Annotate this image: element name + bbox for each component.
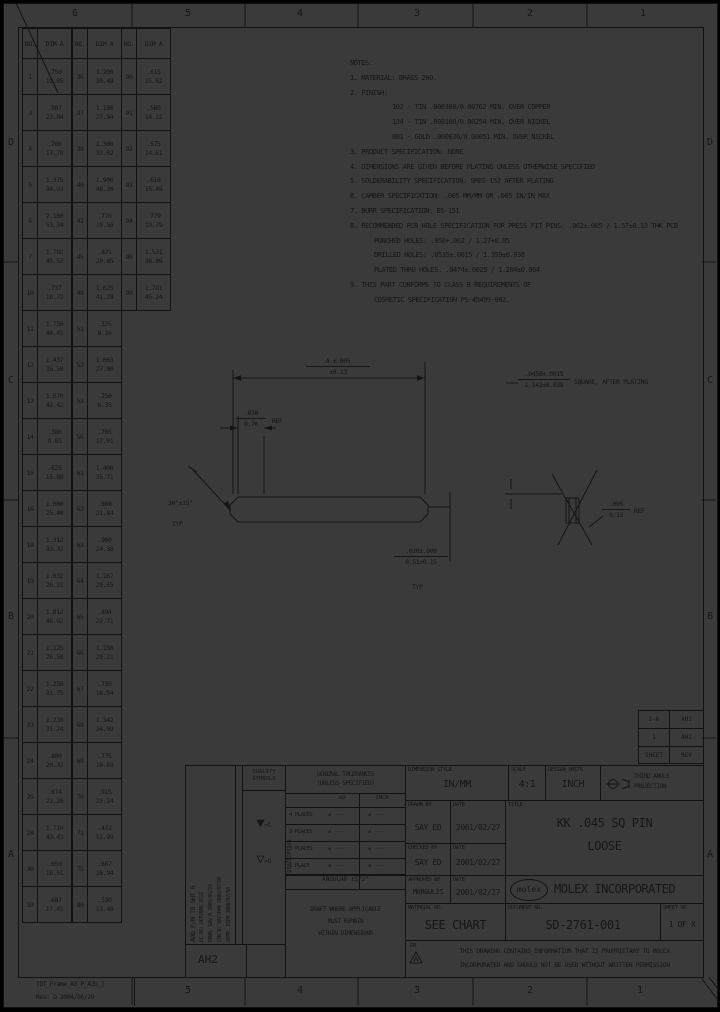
date-label: DATE xyxy=(453,802,465,808)
typ-text: TYP xyxy=(172,520,183,528)
dim-row: 75.66716.94 xyxy=(73,851,122,887)
tip-dim-label: .020±.006 0.51±0.15 xyxy=(394,546,448,567)
rm-mark: RM xyxy=(410,943,416,949)
zone-col: 1 xyxy=(630,985,650,997)
dim-row: 51.3258.26 xyxy=(73,311,122,347)
dim-row: 14.3809.65 xyxy=(23,419,72,455)
dim-row: 611.40635.71 xyxy=(73,455,122,491)
dim-row: 181.31233.32 xyxy=(23,527,72,563)
scale-label: SCALE xyxy=(511,767,526,773)
chamfer-ref-label: .030 0.76 xyxy=(236,408,266,429)
dim-row: 71.47211.99 xyxy=(73,815,122,851)
length-dimension-label: A ±.005 ±0.13 xyxy=(306,356,370,377)
dim-mm: 0.76 xyxy=(236,419,266,429)
third-angle-projection-icon xyxy=(606,776,630,792)
dim-table-0: NO.DIM A1.75019.053.90723.044.70017.7851… xyxy=(22,28,72,923)
dim-mm: 0.13 xyxy=(602,510,630,520)
dim-row: 93.61015.49 xyxy=(122,167,171,203)
dim-row: 24.80020.32 xyxy=(23,743,72,779)
dim-row: 69.77519.69 xyxy=(73,743,122,779)
dim-row: 211.12528.58 xyxy=(23,635,72,671)
frame-rev: Rev: D 2004/06/29 xyxy=(36,991,134,1004)
note-line: 8. RECOMMENDED PCB HOLE SPECIFICATION FO… xyxy=(350,219,695,234)
molex-logo: molex xyxy=(510,879,548,901)
tolerances-title: GENERAL TOLERANCES xyxy=(286,770,405,779)
date-label: DATE xyxy=(453,877,465,883)
proprietary-text: INCORPORATED AND SHOULD NOT BE USED WITH… xyxy=(428,959,701,973)
dim-row: 70.91523.24 xyxy=(73,779,122,815)
tolerance-row: 2 PLACES± ---± --- xyxy=(286,842,405,859)
zone-col: 4 xyxy=(290,985,310,997)
dim-row: 41.77019.56 xyxy=(73,203,122,239)
col-header-mm: mm xyxy=(326,795,359,801)
dim-row: 401.90048.26 xyxy=(73,167,122,203)
title-cell: TITLE KK .045 SQ PIN LOOSE xyxy=(506,801,703,876)
tolerances-subtitle: (UNLESS SPECIFIED) xyxy=(286,779,405,788)
dim-table: NO.DIM A1.75019.053.90723.044.70017.7851… xyxy=(22,28,72,923)
checked-date-cell: DATE 2001/02/27 xyxy=(451,844,506,876)
dim-row: 51.37534.93 xyxy=(23,167,72,203)
dim-row: 521.06327.00 xyxy=(73,347,122,383)
rev-box: AH2 xyxy=(186,945,286,977)
angular-tolerance: ANGULAR ±1/2° xyxy=(286,876,405,883)
revision-line: APPR: ESPH 2008/07/08 xyxy=(225,770,234,942)
material-value: SEE CHART xyxy=(406,918,505,932)
drawn-date-value: 2001/02/27 xyxy=(451,823,505,832)
dim-inch: .0450±.0015 xyxy=(518,369,570,380)
document-number-value: SD-2761-001 xyxy=(506,918,660,932)
zone-col: 4 xyxy=(290,8,310,20)
dim-row: 63.96024.38 xyxy=(73,527,122,563)
dim-row: 25.87422.20 xyxy=(23,779,72,815)
approved-date-cell: DATE 2001/02/27 xyxy=(451,876,506,904)
end-ref-label: .005 0.13 xyxy=(602,499,630,520)
revision-strip: ADD P/N TO SHT 6EC NO: UCP2008 3717DRWN:… xyxy=(186,766,236,945)
description-column: DESCRIPTION xyxy=(236,766,243,945)
sheet-number-label: SHEET NO. xyxy=(663,905,689,911)
material-label: MATERIAL NO. xyxy=(408,905,443,911)
dim-table: NO.DIM A361.20030.48371.10027.94381.3003… xyxy=(72,28,122,923)
revision-line: EC NO: UCP2008 3717 xyxy=(198,770,207,942)
dim-row: 4.70017.78 xyxy=(23,131,72,167)
zone-row: C xyxy=(4,375,18,387)
dim-row: 961.53138.89 xyxy=(122,239,171,275)
rev-value: AH2 xyxy=(198,953,218,966)
zone-col: 1 xyxy=(633,8,653,20)
dim-row: 15.62515.88 xyxy=(23,455,72,491)
dim-row: 131.67042.42 xyxy=(23,383,72,419)
zone-row: A xyxy=(703,849,717,861)
note-line: COSMETIC SPECIFICATION PS-45499-002. xyxy=(350,293,695,308)
document-number-cell: DOCUMENT NO. SD-2761-001 xyxy=(506,904,661,941)
zone-col: 5 xyxy=(178,985,198,997)
rev-value: AH2 xyxy=(670,716,703,723)
zone-row: B xyxy=(703,611,717,623)
proprietary-text: THIS DRAWING CONTAINS INFORMATION THAT I… xyxy=(428,945,701,959)
quality-symbols: QUALITY SYMBOLS ▼=C ▽=O xyxy=(243,766,286,945)
dim-mm: 0.51±0.15 xyxy=(394,557,448,567)
table-header-row: SHEET REV xyxy=(639,747,703,763)
symbol-label: =O xyxy=(264,858,271,865)
dim-row: 111.75044.45 xyxy=(23,311,72,347)
typ-text: TYP xyxy=(412,583,423,591)
approved-by-label: APPROVED BY xyxy=(408,877,440,883)
revision-strip-text: ADD P/N TO SHT 6EC NO: UCP2008 3717DRWN:… xyxy=(189,770,235,942)
note-line: 4. DIMENSIONS ARE GIVEN BEFORE PLATING U… xyxy=(350,160,695,175)
dim-row: 62.10053.34 xyxy=(23,203,72,239)
dim-table-header: NO.DIM A xyxy=(122,29,171,59)
dim-mm: ±0.13 xyxy=(306,367,370,377)
dim-inch: .020±.006 xyxy=(394,546,448,557)
design-units-cell: DESIGN UNITS INCH xyxy=(546,766,601,801)
date-label: DATE xyxy=(453,845,465,851)
zone-col: 3 xyxy=(407,8,427,20)
proprietary-cell: RM A THIS DRAWING CONTAINS INFORMATION T… xyxy=(406,941,703,977)
zone-col: 2 xyxy=(520,985,540,997)
symbol-label: =C xyxy=(264,822,271,829)
note-line: 6. CAMBER SPECIFICATION: .005 MM/MM OR .… xyxy=(350,189,695,204)
note-line: PLATED THRU HOLES: .0474±.0025 / 1.204±0… xyxy=(350,263,695,278)
approved-date-value: 2001/02/27 xyxy=(451,888,505,897)
dim-table: NO.DIM A90.61515.6291.56014.2292.57514.6… xyxy=(121,28,171,311)
sheet-range: 1 xyxy=(639,729,670,746)
sheet-number-cell: SHEET NO. 1 OF X xyxy=(661,904,703,941)
checked-by-cell: CHECKED BY SAY ED xyxy=(406,844,451,876)
square-note-text: SQUARE, AFTER PLATING xyxy=(574,378,648,386)
note-line: 102 - TIN .000300/0.00762 MIN. OVER COPP… xyxy=(350,100,695,115)
dim-row: 641.16729.65 xyxy=(73,563,122,599)
checked-by-value: SAY ED xyxy=(406,858,450,867)
projection-text: PROJECTION xyxy=(634,782,669,792)
dim-mm: 1.143±0.038 xyxy=(518,380,570,390)
dim-row: 71.79245.52 xyxy=(23,239,72,275)
dim-inch: .030 xyxy=(236,408,266,419)
design-units-label: DESIGN UNITS xyxy=(548,767,583,773)
draft-note: WITHIN DIMENSIONS xyxy=(286,928,405,940)
frame-name: [DT_Frame_A3_P_A3U_] xyxy=(36,978,134,991)
note-line: 9. THIS PART CONFORMS TO CLASS B REQUIRE… xyxy=(350,278,695,293)
dim-row: 221.25031.75 xyxy=(23,671,72,707)
draft-note: DRAFT WHERE APPLICABLE xyxy=(286,904,405,916)
general-tolerances: GENERAL TOLERANCES (UNLESS SPECIFIED) mm… xyxy=(286,766,406,977)
dimension-style-value: IN/MM xyxy=(406,779,508,790)
dim-row: 481.62541.28 xyxy=(73,275,122,311)
quality-title: QUALITY xyxy=(243,769,285,776)
sheet-rev-table: 2-6 AH2 1 AH2 SHEET REV xyxy=(638,710,704,764)
company-name: MOLEX INCORPORATED xyxy=(554,882,675,896)
dim-row: 191.03226.21 xyxy=(23,563,72,599)
scale-value: 4:1 xyxy=(509,779,545,790)
note-line: 1. MATERIAL: BRASS 260. xyxy=(350,71,695,86)
ref-text: REF xyxy=(272,417,283,425)
dim-row: 381.30033.02 xyxy=(73,131,122,167)
note-line: 3. PRODUCT SPECIFICATION: NONE xyxy=(350,145,695,160)
revision-line: CHK'D: DAITHAN 2008/07/08 xyxy=(216,770,225,942)
projection-cell: THIRD ANGLE PROJECTION xyxy=(601,766,703,801)
draft-note: MUST REMAIN xyxy=(286,916,405,928)
dim-table-1: NO.DIM A361.20030.48371.10027.94381.3003… xyxy=(72,28,122,923)
dim-row: 33.68717.45 xyxy=(23,887,72,923)
drawn-by-cell: DRAWN BY SAY ED xyxy=(406,801,451,844)
dim-table-header: NO.DIM A xyxy=(23,29,72,59)
rev-value: AH2 xyxy=(670,734,703,741)
dim-inch: A ±.005 xyxy=(306,356,370,367)
note-line: 134 - TIN .000100/0.00254 MIN. OVER NICK… xyxy=(350,115,695,130)
note-line: 2. FINISH: xyxy=(350,86,695,101)
dim-row: 1.75019.05 xyxy=(23,59,72,95)
dim-row: 30.65016.51 xyxy=(23,851,72,887)
col-header-inch: INCH xyxy=(360,795,404,801)
dim-row: 90.61515.62 xyxy=(122,59,171,95)
dim-row: 281.71043.43 xyxy=(23,815,72,851)
zone-col: 5 xyxy=(178,8,198,20)
dim-row: 91.56014.22 xyxy=(122,95,171,131)
drawn-by-label: DRAWN BY xyxy=(408,802,431,808)
dim-row: 161.00025.40 xyxy=(23,491,72,527)
document-number-label: DOCUMENT NO. xyxy=(508,905,543,911)
tolerance-rows: 4 PLACES± ---± ---3 PLACES± ---± ---2 PL… xyxy=(286,808,405,876)
quality-title: SYMBOLS xyxy=(243,776,285,783)
tolerance-row: 4 PLACES± ---± --- xyxy=(286,808,405,825)
approved-by-cell: APPROVED BY MARGULIS xyxy=(406,876,451,904)
checked-by-label: CHECKED BY xyxy=(408,845,437,851)
dimension-style-label: DIMENSION STYLE xyxy=(408,767,452,773)
zone-row: B xyxy=(4,611,18,623)
dim-table-header: NO.DIM A xyxy=(73,29,122,59)
note-line: NOTES: xyxy=(350,56,695,71)
sheet-number-value: 1 OF X xyxy=(661,920,703,929)
dim-row: 80.53013.46 xyxy=(73,887,122,923)
dim-table-2: NO.DIM A90.61515.6291.56014.2292.57514.6… xyxy=(121,28,171,311)
scale-cell: SCALE 4:1 xyxy=(509,766,546,801)
projection-text: THIRD ANGLE xyxy=(634,772,669,782)
drawing-title-line1: KK .045 SQ PIN xyxy=(506,816,703,830)
dim-row: 62.86021.84 xyxy=(73,491,122,527)
delta-a-icon: A xyxy=(409,951,423,964)
dim-row: 67.73018.54 xyxy=(73,671,122,707)
dim-row: 10.73718.72 xyxy=(23,275,72,311)
design-units-value: INCH xyxy=(546,779,600,790)
dim-row: 991.78145.24 xyxy=(122,275,171,311)
sheet-range: 2-6 xyxy=(639,711,670,728)
approved-by-value: MARGULIS xyxy=(406,888,450,896)
square-dim-label: .0450±.0015 1.143±0.038 xyxy=(518,369,570,390)
dim-row: 201.81246.02 xyxy=(23,599,72,635)
dim-row: 371.10027.94 xyxy=(73,95,122,131)
dim-row: 361.20030.48 xyxy=(73,59,122,95)
dim-row: 65.89422.71 xyxy=(73,599,122,635)
dim-row: 231.23031.24 xyxy=(23,707,72,743)
note-line: 801 - GOLD .000020/0.00051 MIN. OVER NIC… xyxy=(350,130,695,145)
material-cell: MATERIAL NO. SEE CHART xyxy=(406,904,506,941)
dim-row: 56.70517.91 xyxy=(73,419,122,455)
notes-list: NOTES:1. MATERIAL: BRASS 260.2. FINISH:1… xyxy=(350,56,695,308)
sheet-header: SHEET xyxy=(639,747,670,763)
revision-line: ADD P/N TO SHT 6 xyxy=(189,770,198,942)
zone-col: 6 xyxy=(65,8,85,20)
title-block: ADD P/N TO SHT 6EC NO: UCP2008 3717DRWN:… xyxy=(185,765,704,978)
note-line: 5. SOLDERABILITY SPECIFICATION: SMES-152… xyxy=(350,174,695,189)
dim-row: 681.34234.09 xyxy=(73,707,122,743)
company-cell: molex MOLEX INCORPORATED xyxy=(506,876,703,904)
title-label: TITLE xyxy=(508,802,523,808)
drawing-sheet: 6 5 4 3 2 1 5 4 3 2 1 D C B A D C B A xyxy=(0,0,720,1012)
note-line: DRILLED HOLES: .0535±.0015 / 1.359±0.038 xyxy=(350,248,695,263)
dim-row: 94.77919.79 xyxy=(122,203,171,239)
zone-col: 2 xyxy=(520,8,540,20)
dim-row: 92.57514.61 xyxy=(122,131,171,167)
table-row: 1 AH2 xyxy=(639,729,703,747)
drawing-title-line2: LOOSE xyxy=(506,839,703,853)
zone-row: D xyxy=(703,137,717,149)
ref-text: REF xyxy=(634,507,645,515)
dimension-style-cell: DIMENSION STYLE IN/MM xyxy=(406,766,509,801)
rev-header: REV xyxy=(670,752,703,759)
revision-line: DRWN: GAV_R 2008/06/23 xyxy=(207,770,216,942)
note-line: 7. BURR SPECIFICATION: BS-151 xyxy=(350,204,695,219)
dim-row: 661.15029.21 xyxy=(73,635,122,671)
dim-inch: .005 xyxy=(602,499,630,510)
tolerance-row: 3 PLACES± ---± --- xyxy=(286,825,405,842)
table-row: 2-6 AH2 xyxy=(639,711,703,729)
zone-row: C xyxy=(703,375,717,387)
dim-row: 121.43736.50 xyxy=(23,347,72,383)
drawn-by-value: SAY ED xyxy=(406,823,450,832)
dim-row: 45.82120.85 xyxy=(73,239,122,275)
zone-row: D xyxy=(4,137,18,149)
zone-row: A xyxy=(4,849,18,861)
drawn-date-cell: DATE 2001/02/27 xyxy=(451,801,506,844)
dim-row: 53.2506.35 xyxy=(73,383,122,419)
frame-label: [DT_Frame_A3_P_A3U_] Rev: D 2004/06/29 xyxy=(36,978,135,1006)
divider xyxy=(246,945,247,977)
note-line: PUNCHED HOLES: .050+.002 / 1.27+0.05 xyxy=(350,234,695,249)
chamfer-angle-label: 30°±15° xyxy=(168,499,193,507)
checked-date-value: 2001/02/27 xyxy=(451,858,505,867)
zone-col: 3 xyxy=(407,985,427,997)
dim-row: 3.90723.04 xyxy=(23,95,72,131)
